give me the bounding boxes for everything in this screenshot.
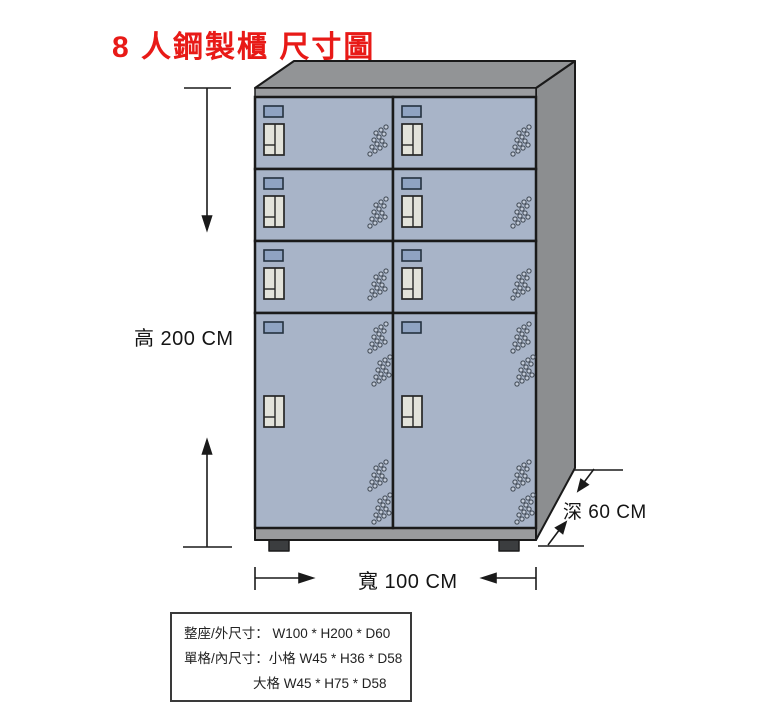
name-tag — [264, 250, 283, 261]
cabinet-top-face — [255, 61, 575, 88]
name-tag — [402, 106, 421, 117]
coin-lock — [264, 124, 284, 155]
coin-lock — [264, 196, 284, 227]
name-tag — [264, 178, 283, 189]
name-tag — [402, 178, 421, 189]
depth-dimension-label: 深 60 CM — [563, 497, 647, 524]
spec-line-small-compartment: 單格/內尺寸：小格 W45 * H36 * D58 — [184, 646, 410, 671]
depth-dimension-upper-arrow — [574, 469, 623, 491]
spec-box: 整座/外尺寸： W100 * H200 * D60 單格/內尺寸：小格 W45 … — [170, 612, 412, 702]
spec-line-large-compartment: 大格 W45 * H75 * D58 — [184, 671, 410, 696]
height-dimension-label: 高 200 CM — [134, 322, 234, 351]
small-locker-door — [255, 97, 393, 169]
name-tag — [264, 106, 283, 117]
coin-lock — [264, 268, 284, 299]
coin-lock — [402, 196, 422, 227]
coin-lock — [402, 396, 422, 427]
name-tag — [402, 250, 421, 261]
small-locker-door — [393, 241, 536, 313]
coin-lock — [402, 268, 422, 299]
locker-doors — [255, 97, 536, 528]
coin-lock — [264, 396, 284, 427]
height-dimension-bottom-arrow — [183, 440, 232, 547]
name-tag — [264, 322, 283, 333]
small-locker-door — [393, 97, 536, 169]
large-locker-door — [255, 313, 393, 528]
small-locker-door — [255, 241, 393, 313]
cabinet-plinth — [255, 528, 536, 540]
cabinet-side-face — [536, 61, 575, 540]
cabinet-foot-left — [269, 540, 289, 551]
height-dimension-top-arrow — [184, 88, 231, 230]
cabinet-foot-right — [499, 540, 519, 551]
width-dimension-label: 寬 100 CM — [358, 565, 458, 594]
dimension-diagram-page: 8 人鋼製櫃 尺寸圖 — [0, 0, 781, 720]
large-locker-door — [393, 313, 536, 528]
coin-lock — [402, 124, 422, 155]
cabinet-top-fascia — [255, 88, 536, 97]
name-tag — [402, 322, 421, 333]
width-dimension-right-arrow — [482, 567, 536, 590]
small-locker-door — [255, 169, 393, 241]
small-locker-door — [393, 169, 536, 241]
width-dimension-left-arrow — [255, 567, 313, 590]
spec-line-overall: 整座/外尺寸： W100 * H200 * D60 — [184, 621, 410, 646]
